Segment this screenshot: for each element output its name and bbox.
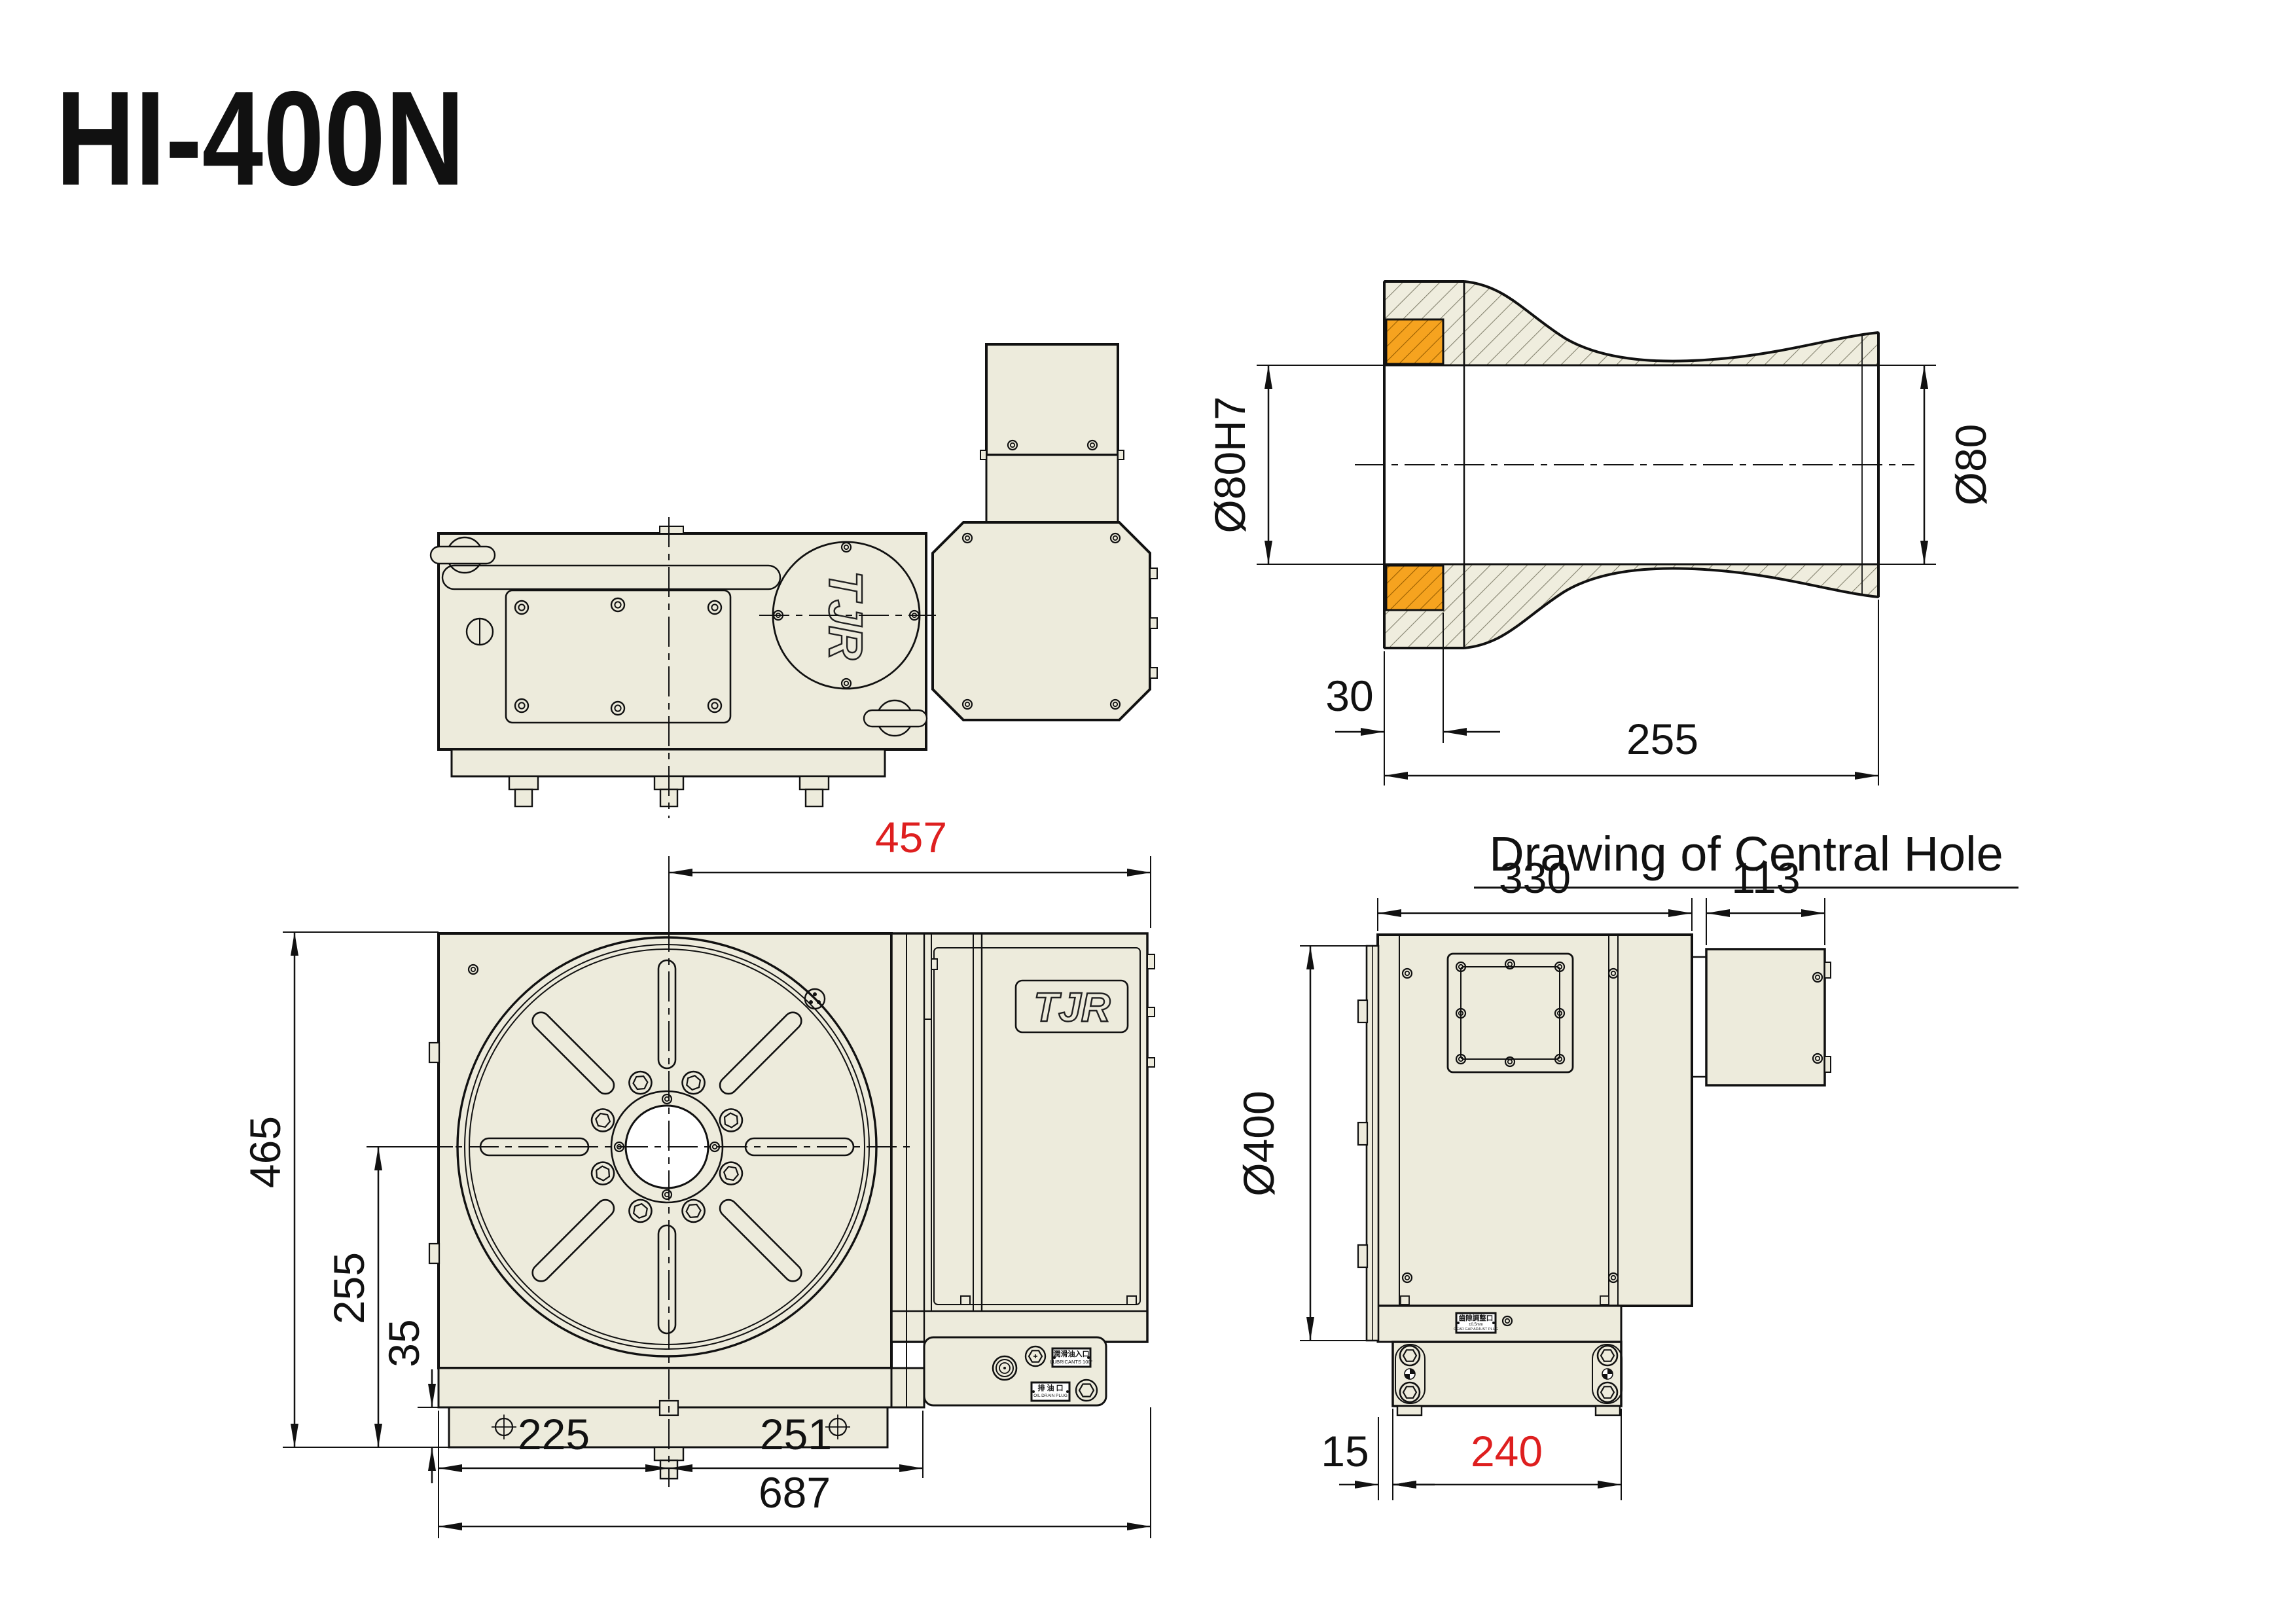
dim-687: 687 [759, 1468, 831, 1517]
dim-depth-30: 30 [1325, 672, 1373, 720]
top-motor-upper [986, 344, 1118, 455]
svg-text:LUBRICANTS 100°: LUBRICANTS 100° [1050, 1359, 1092, 1365]
top-gearbox [933, 522, 1150, 720]
svg-text:齒隙調整口: 齒隙調整口 [1459, 1314, 1494, 1322]
dim-bore-h7: Ø80H7 [1206, 396, 1254, 533]
svg-text:±0.5mm: ±0.5mm [1469, 1323, 1483, 1327]
dim-length-255: 255 [1626, 715, 1698, 763]
title-block: HI-400N [56, 63, 465, 213]
drain-label: 排 油 口 OIL DRAIN PLUG [1031, 1382, 1069, 1401]
dim-15: 15 [1321, 1427, 1369, 1475]
dim-457: 457 [875, 813, 947, 861]
dim-330: 330 [1499, 854, 1571, 902]
side-view: 齒隙調整口 ±0.5mm GEAR GAP ADJUST PLUG 330 11… [1234, 854, 1831, 1500]
side-motor-box [1706, 949, 1825, 1085]
central-hole-view: Ø80H7 Ø80 30 255 Drawing of Central Hole [1206, 281, 2018, 888]
top-motor-lower [986, 455, 1118, 522]
svg-text:排 油 口: 排 油 口 [1037, 1383, 1063, 1392]
svg-text:OIL DRAIN PLUG: OIL DRAIN PLUG [1033, 1394, 1067, 1398]
tjr-logo-front-icon: TJR [1033, 985, 1110, 1030]
dim-113: 113 [1731, 854, 1800, 902]
side-body [1378, 935, 1692, 1306]
side-foot-block [1393, 1342, 1621, 1406]
dim-240: 240 [1471, 1427, 1543, 1475]
svg-text:潤滑油入口: 潤滑油入口 [1054, 1349, 1090, 1358]
dim-225: 225 [518, 1410, 590, 1458]
dim-251: 251 [760, 1410, 832, 1458]
h7-zone-top [1386, 319, 1443, 364]
top-view: TJR [431, 344, 1157, 818]
dim-bore: Ø80 [1946, 424, 1995, 506]
lubricant-label: 潤滑油入口 LUBRICANTS 100° [1050, 1348, 1092, 1367]
dim-35: 35 [380, 1319, 428, 1367]
front-view: TJR 潤滑油入口 LUBRICANTS 100° 排 油 口 OI [241, 813, 1155, 1538]
dim-table-dia: Ø400 [1234, 1091, 1283, 1196]
h7-zone-bottom [1386, 566, 1443, 610]
svg-text:GEAR GAP ADJUST PLUG: GEAR GAP ADJUST PLUG [1454, 1327, 1498, 1331]
dim-465: 465 [241, 1116, 289, 1188]
page-title: HI-400N [56, 63, 465, 213]
gear-gap-label: 齒隙調整口 ±0.5mm GEAR GAP ADJUST PLUG [1454, 1313, 1498, 1333]
power-connector-icon [993, 1356, 1016, 1380]
technical-drawing-svg: HI-400N TJR [0, 0, 2296, 1624]
dim-255-front: 255 [325, 1252, 373, 1324]
drawing-page: HI-400N TJR [0, 0, 2296, 1624]
